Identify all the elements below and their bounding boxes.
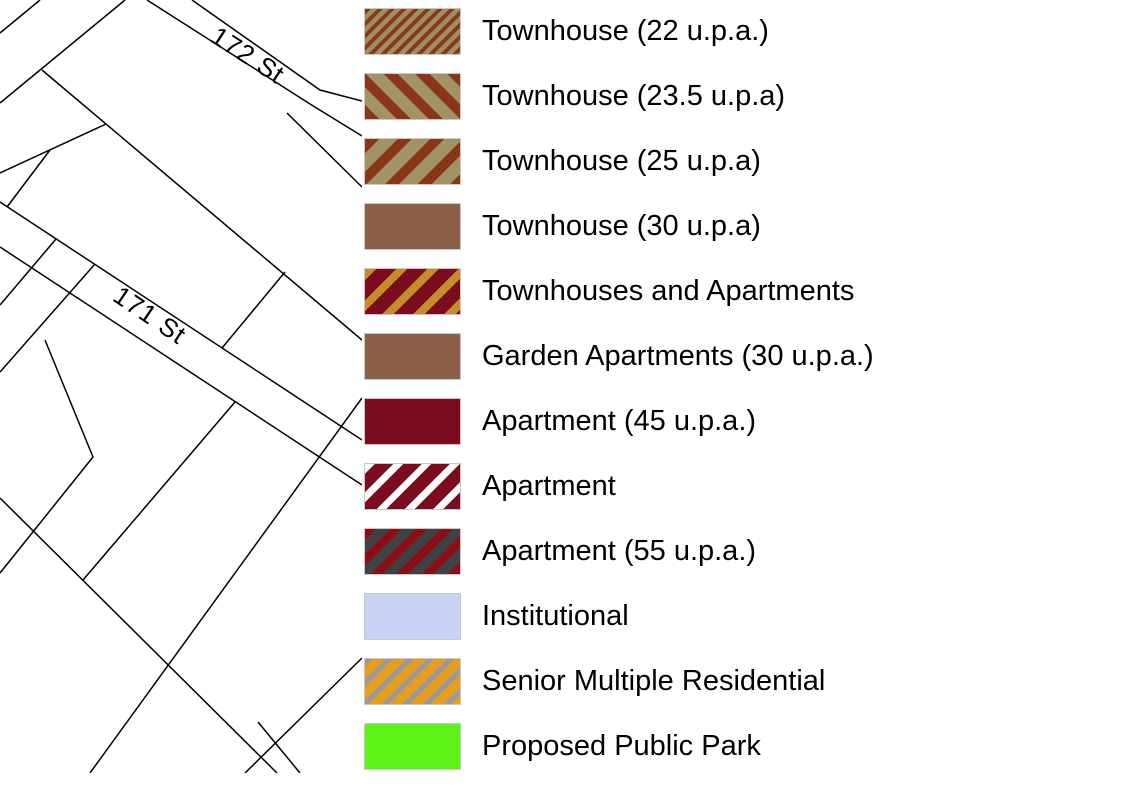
legend-label: Apartment (45 u.p.a.)	[461, 407, 756, 436]
legend-swatch	[364, 398, 461, 445]
legend-swatch	[364, 528, 461, 575]
legend: Townhouse (22 u.p.a.)Townhouse (23.5 u.p…	[364, 8, 874, 788]
legend-item: Senior Multiple Residential	[364, 658, 874, 705]
legend-swatch	[364, 8, 461, 55]
legend-swatch	[364, 268, 461, 315]
legend-item: Townhouse (23.5 u.p.a)	[364, 73, 874, 120]
legend-swatch	[364, 463, 461, 510]
legend-item: Townhouse (30 u.p.a)	[364, 203, 874, 250]
legend-swatch	[364, 723, 461, 770]
legend-swatch	[364, 333, 461, 380]
legend-label: Townhouse (25 u.p.a)	[461, 147, 761, 176]
legend-swatch	[364, 203, 461, 250]
street-label-171: 171 St	[108, 280, 192, 350]
legend-label: Apartment	[461, 472, 616, 501]
parcel-map: 172 St 171 St	[0, 0, 362, 773]
legend-item: Garden Apartments (30 u.p.a.)	[364, 333, 874, 380]
legend-item: Townhouse (22 u.p.a.)	[364, 8, 874, 55]
parcel-lines	[0, 0, 362, 773]
legend-label: Senior Multiple Residential	[461, 667, 825, 696]
legend-item: Apartment (45 u.p.a.)	[364, 398, 874, 445]
legend-label: Institutional	[461, 602, 629, 631]
legend-label: Townhouse (22 u.p.a.)	[461, 17, 769, 46]
legend-item: Proposed Public Park	[364, 723, 874, 770]
legend-label: Townhouses and Apartments	[461, 277, 854, 306]
legend-label: Townhouse (23.5 u.p.a)	[461, 82, 785, 111]
legend-swatch	[364, 658, 461, 705]
legend-item: Townhouse (25 u.p.a)	[364, 138, 874, 185]
legend-item: Apartment (55 u.p.a.)	[364, 528, 874, 575]
legend-label: Proposed Public Park	[461, 732, 761, 761]
legend-label: Garden Apartments (30 u.p.a.)	[461, 342, 874, 371]
legend-label: Apartment (55 u.p.a.)	[461, 537, 756, 566]
legend-item: Institutional	[364, 593, 874, 640]
legend-label: Townhouse (30 u.p.a)	[461, 212, 761, 241]
legend-item: Townhouses and Apartments	[364, 268, 874, 315]
legend-swatch	[364, 593, 461, 640]
legend-item: Apartment	[364, 463, 874, 510]
legend-swatch	[364, 73, 461, 120]
legend-swatch	[364, 138, 461, 185]
street-label-172: 172 St	[206, 20, 290, 89]
